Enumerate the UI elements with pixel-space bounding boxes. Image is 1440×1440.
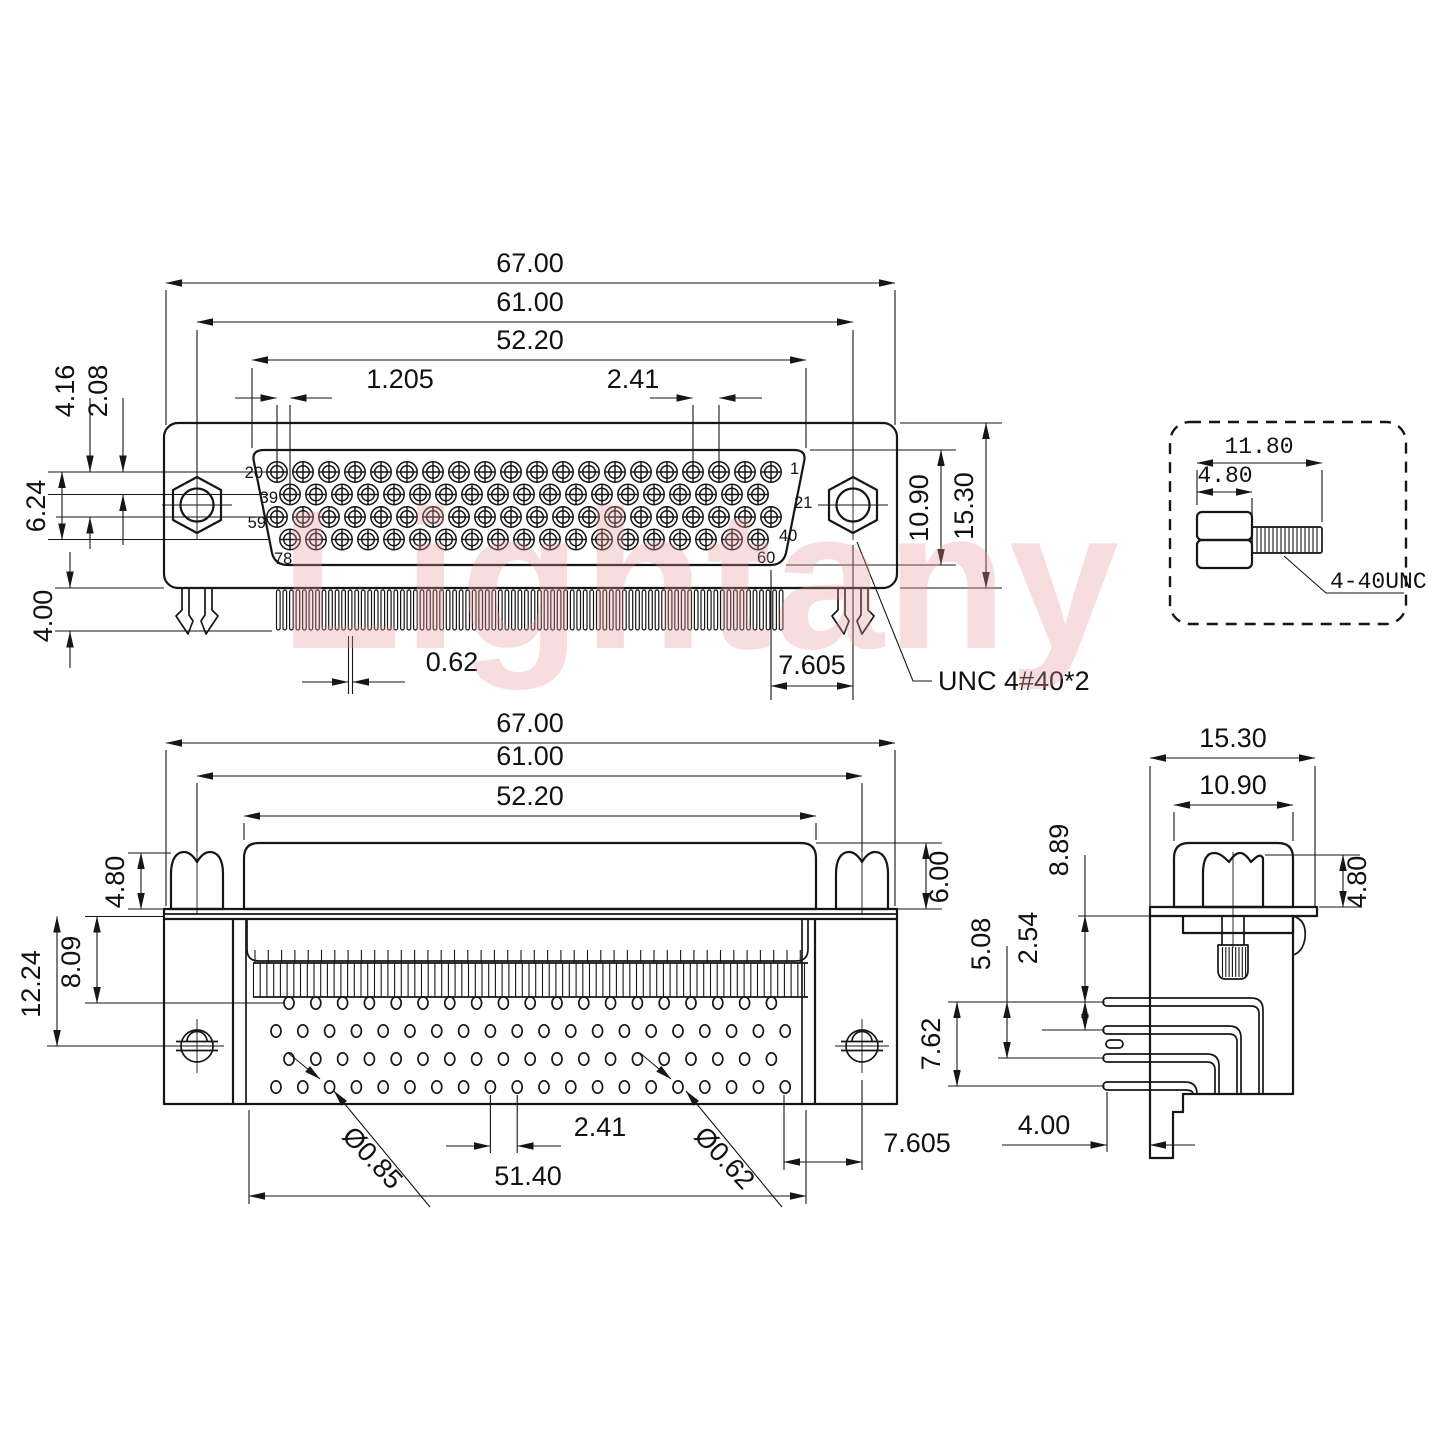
svg-text:4-40UNC: 4-40UNC — [1330, 569, 1427, 595]
rear-left-screw — [170, 1019, 224, 1073]
rear-view: 67.00 61.00 52.20 — [16, 708, 954, 1207]
detail-view: 11.80 4.80 4-40UNC — [1170, 422, 1427, 624]
rear-right-screw — [835, 1019, 889, 1073]
svg-text:6.00: 6.00 — [924, 851, 954, 904]
rear-left-pillar — [171, 845, 223, 915]
svg-text:8.09: 8.09 — [56, 936, 86, 989]
svg-text:2.41: 2.41 — [574, 1112, 627, 1142]
svg-text:4.80: 4.80 — [1197, 463, 1252, 489]
front-left-hex-nut — [162, 470, 232, 540]
rear-dim-7-605: 7.605 — [784, 1080, 951, 1170]
rear-contact-comb — [254, 950, 805, 997]
svg-text:4.16: 4.16 — [50, 365, 80, 418]
side-dim-5-08: 5.08 — [966, 918, 1007, 1058]
dsub-78pin-drawing: 20 1 39 21 59 40 78 60 67.00 61.00 52.20 — [0, 0, 1440, 1440]
rear-dia-0-62: Ø0.62 — [640, 1053, 782, 1207]
rear-shell — [244, 843, 816, 909]
side-dim-4-00: 4.00 — [1002, 1092, 1195, 1152]
detail-screw — [1197, 512, 1322, 568]
svg-text:4.00: 4.00 — [28, 590, 58, 643]
rear-body — [164, 919, 897, 1104]
front-dim-6-24: 6.24 — [21, 472, 62, 540]
rear-dim-12-24: 12.24 — [16, 917, 172, 1047]
svg-text:52.20: 52.20 — [496, 781, 564, 811]
pin-label-39: 39 — [260, 489, 278, 507]
front-dim-4-00: 4.00 — [28, 552, 272, 668]
side-body — [1150, 916, 1305, 1158]
svg-text:51.40: 51.40 — [494, 1161, 562, 1191]
svg-text:67.00: 67.00 — [496, 248, 564, 278]
svg-text:12.24: 12.24 — [16, 950, 46, 1018]
detail-dim-4-80: 4.80 — [1197, 463, 1253, 522]
side-dim-2-54: 2.54 — [1013, 912, 1085, 1030]
svg-text:8.89: 8.89 — [1044, 824, 1074, 877]
svg-text:2.54: 2.54 — [1013, 912, 1043, 965]
svg-text:52.20: 52.20 — [496, 325, 564, 355]
svg-text:11.80: 11.80 — [1224, 434, 1293, 460]
side-flange — [1150, 907, 1317, 916]
side-shell — [1174, 843, 1293, 907]
svg-text:7.605: 7.605 — [883, 1128, 951, 1158]
engineering-drawing-page: 20 1 39 21 59 40 78 60 67.00 61.00 52.20 — [0, 0, 1440, 1440]
svg-text:Ø0.62: Ø0.62 — [689, 1121, 761, 1195]
svg-text:2.41: 2.41 — [607, 364, 660, 394]
svg-text:67.00: 67.00 — [496, 708, 564, 738]
svg-text:61.00: 61.00 — [496, 741, 564, 771]
svg-text:4.80: 4.80 — [1342, 856, 1372, 909]
svg-text:4.80: 4.80 — [100, 856, 130, 909]
svg-text:Ø0.85: Ø0.85 — [337, 1121, 409, 1195]
rear-solder-holes — [271, 997, 790, 1093]
rear-right-pillar — [836, 845, 888, 915]
side-dim-7-62: 7.62 — [916, 1002, 957, 1086]
svg-text:10.90: 10.90 — [1199, 770, 1267, 800]
side-view: 15.30 10.90 — [916, 723, 1372, 1158]
svg-text:1.205: 1.205 — [366, 364, 434, 394]
svg-text:61.00: 61.00 — [496, 287, 564, 317]
front-dim-2-08: 2.08 — [83, 365, 123, 545]
svg-text:2.08: 2.08 — [83, 365, 113, 418]
rear-dia-0-85: Ø0.85 — [288, 1053, 430, 1207]
rear-dim-52-2: 52.20 — [244, 781, 816, 840]
svg-text:5.08: 5.08 — [966, 918, 996, 971]
rear-dim-4-80: 4.80 — [100, 853, 171, 909]
svg-text:6.24: 6.24 — [21, 480, 51, 533]
svg-text:4.00: 4.00 — [1018, 1110, 1071, 1140]
side-dim-10-90: 10.90 — [1174, 770, 1293, 841]
side-bent-pins — [1103, 998, 1263, 1094]
side-dim-8-89: 8.89 — [1044, 824, 1150, 1002]
svg-text:15.30: 15.30 — [1199, 723, 1267, 753]
side-dim-4-80: 4.80 — [1265, 855, 1372, 908]
svg-text:7.62: 7.62 — [916, 1018, 946, 1071]
front-dim-52-2: 52.20 — [252, 325, 806, 448]
watermark-text: Lightany — [280, 469, 1121, 690]
rear-dim-8-09: 8.09 — [56, 917, 284, 1004]
pin-label-20: 20 — [245, 464, 263, 482]
